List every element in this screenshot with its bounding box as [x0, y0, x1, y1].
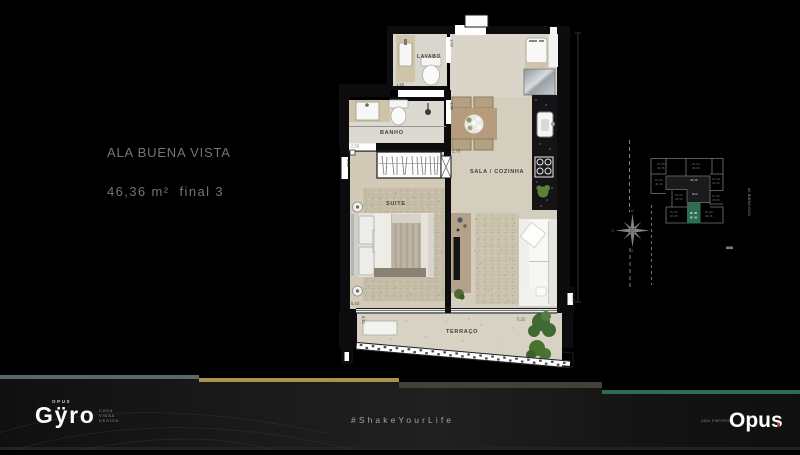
svg-text:46,36: 46,36: [712, 181, 720, 185]
svg-text:2,75: 2,75: [452, 149, 461, 154]
svg-text:BANHO: BANHO: [380, 130, 404, 136]
svg-text:N: N: [631, 209, 634, 213]
svg-text:46,36: 46,36: [690, 178, 698, 182]
svg-text:0,81: 0,81: [361, 316, 366, 325]
svg-text:46,36: 46,36: [655, 182, 663, 186]
svg-text:TERRAÇO: TERRAÇO: [446, 329, 478, 335]
svg-text:L: L: [651, 229, 653, 233]
svg-text:46,36: 46,36: [712, 198, 720, 202]
svg-text:SUITE: SUITE: [386, 201, 406, 207]
svg-text:1,50: 1,50: [396, 82, 405, 87]
svg-text:46,36: 46,36: [675, 197, 683, 201]
svg-text:S: S: [631, 249, 634, 253]
svg-text:4,05: 4,05: [346, 159, 351, 168]
svg-text:LAVABO: LAVABO: [417, 54, 441, 60]
svg-text:final: final: [692, 192, 698, 196]
svg-text:O: O: [612, 229, 615, 233]
svg-text:1,03: 1,03: [450, 39, 455, 48]
svg-text:5,22: 5,22: [517, 317, 526, 322]
svg-text:46,36: 46,36: [670, 214, 678, 218]
svg-text:SALA / COZINHA: SALA / COZINHA: [470, 169, 524, 175]
svg-text:46,36: 46,36: [692, 166, 700, 170]
svg-text:5,43: 5,43: [351, 301, 360, 306]
svg-text:46,36: 46,36: [705, 214, 713, 218]
svg-text:1,38: 1,38: [450, 102, 455, 111]
svg-text:2,55: 2,55: [351, 143, 360, 148]
svg-text:46,36: 46,36: [657, 166, 665, 170]
svg-text:AV. BUENA VISTA: AV. BUENA VISTA: [747, 188, 751, 217]
